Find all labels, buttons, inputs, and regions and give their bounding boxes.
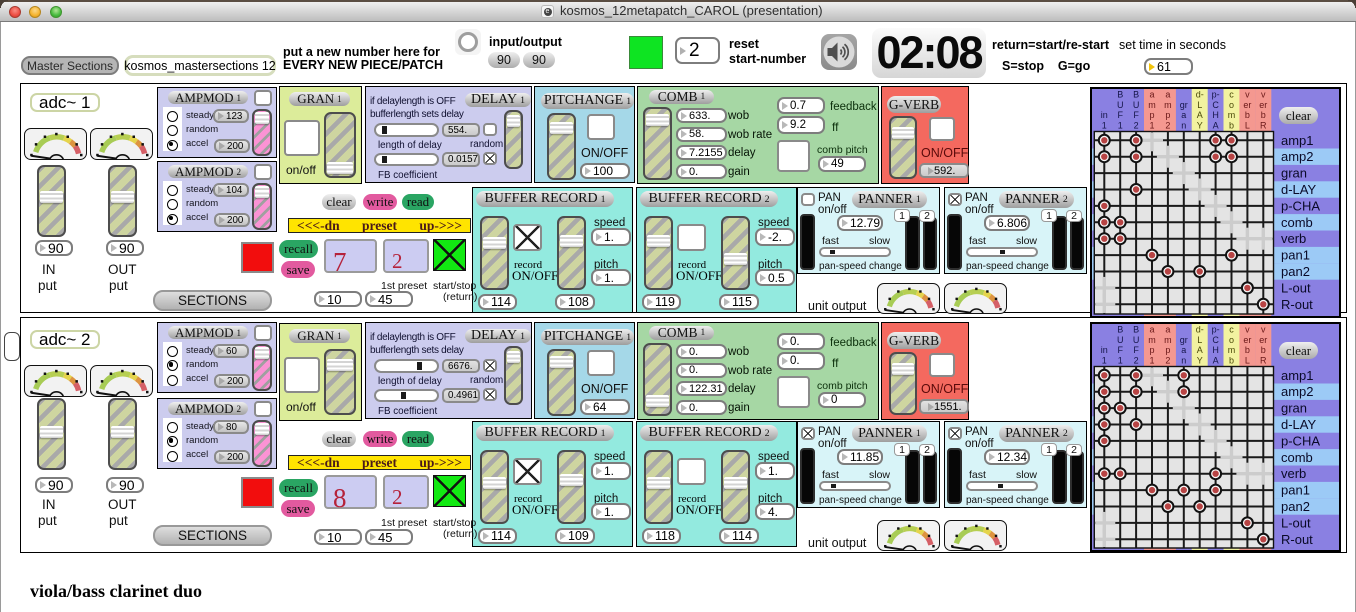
svg-text:d-LAY: d-LAY bbox=[1281, 417, 1316, 432]
svg-text:m: m bbox=[1164, 335, 1172, 345]
svg-text:A: A bbox=[1197, 110, 1203, 120]
svg-text:1: 1 bbox=[1102, 356, 1107, 366]
svg-text:b: b bbox=[1245, 110, 1250, 120]
svg-text:2: 2 bbox=[1134, 121, 1139, 131]
svg-text:U: U bbox=[1133, 335, 1140, 345]
svg-text:b: b bbox=[1229, 121, 1234, 131]
svg-text:b: b bbox=[1229, 356, 1234, 366]
svg-text:a: a bbox=[1149, 90, 1154, 100]
svg-text:C: C bbox=[1212, 335, 1219, 345]
svg-text:1: 1 bbox=[1102, 121, 1107, 131]
svg-text:o: o bbox=[1229, 100, 1234, 110]
svg-text:b: b bbox=[1245, 345, 1250, 355]
svg-text:pan1: pan1 bbox=[1281, 248, 1310, 263]
svg-text:c: c bbox=[1229, 325, 1234, 335]
svg-text:d-: d- bbox=[1196, 90, 1204, 100]
svg-text:in: in bbox=[1101, 110, 1108, 120]
svg-text:2: 2 bbox=[1134, 356, 1139, 366]
svg-text:gr: gr bbox=[1180, 335, 1188, 345]
svg-text:er: er bbox=[1259, 100, 1267, 110]
svg-text:L: L bbox=[1245, 356, 1250, 366]
svg-text:a: a bbox=[1181, 110, 1186, 120]
svg-text:F: F bbox=[1133, 345, 1139, 355]
svg-text:verb: verb bbox=[1281, 466, 1306, 481]
svg-text:Y: Y bbox=[1197, 121, 1203, 131]
svg-text:p-: p- bbox=[1212, 325, 1220, 335]
svg-text:p-CHA: p-CHA bbox=[1281, 433, 1320, 448]
svg-text:p: p bbox=[1165, 345, 1170, 355]
svg-text:a: a bbox=[1165, 325, 1170, 335]
svg-text:d-: d- bbox=[1196, 325, 1204, 335]
svg-text:U: U bbox=[1117, 335, 1124, 345]
svg-text:F: F bbox=[1117, 345, 1123, 355]
svg-text:pan1: pan1 bbox=[1281, 483, 1310, 498]
svg-text:m: m bbox=[1164, 100, 1172, 110]
svg-text:c: c bbox=[1229, 90, 1234, 100]
svg-text:B: B bbox=[1133, 90, 1139, 100]
svg-text:er: er bbox=[1259, 335, 1267, 345]
svg-text:1: 1 bbox=[1118, 356, 1123, 366]
svg-text:amp1: amp1 bbox=[1281, 133, 1314, 148]
svg-text:A: A bbox=[1197, 345, 1203, 355]
svg-text:m: m bbox=[1228, 345, 1236, 355]
svg-text:R-out: R-out bbox=[1281, 532, 1313, 547]
svg-text:H: H bbox=[1212, 110, 1219, 120]
svg-text:U: U bbox=[1133, 100, 1140, 110]
svg-text:B: B bbox=[1117, 325, 1123, 335]
svg-text:L: L bbox=[1197, 335, 1202, 345]
svg-text:comb: comb bbox=[1281, 215, 1313, 230]
svg-text:2: 2 bbox=[1165, 121, 1170, 131]
svg-text:n: n bbox=[1181, 121, 1186, 131]
svg-text:H: H bbox=[1212, 345, 1219, 355]
svg-text:C: C bbox=[1212, 100, 1219, 110]
svg-text:in: in bbox=[1101, 345, 1108, 355]
svg-text:m: m bbox=[1228, 110, 1236, 120]
svg-text:er: er bbox=[1243, 335, 1251, 345]
svg-text:B: B bbox=[1133, 325, 1139, 335]
svg-text:m: m bbox=[1148, 335, 1156, 345]
svg-text:d-LAY: d-LAY bbox=[1281, 182, 1316, 197]
svg-text:L-out: L-out bbox=[1281, 515, 1311, 530]
svg-text:b: b bbox=[1261, 110, 1266, 120]
svg-text:a: a bbox=[1181, 345, 1186, 355]
svg-text:n: n bbox=[1181, 356, 1186, 366]
svg-text:amp1: amp1 bbox=[1281, 368, 1314, 383]
svg-text:p-: p- bbox=[1212, 90, 1220, 100]
svg-text:1: 1 bbox=[1118, 121, 1123, 131]
svg-text:p: p bbox=[1165, 110, 1170, 120]
svg-text:pan2: pan2 bbox=[1281, 499, 1310, 514]
svg-text:Y: Y bbox=[1197, 356, 1203, 366]
svg-text:U: U bbox=[1117, 100, 1124, 110]
svg-text:er: er bbox=[1243, 100, 1251, 110]
svg-text:L: L bbox=[1197, 100, 1202, 110]
svg-text:v: v bbox=[1245, 325, 1250, 335]
svg-text:R: R bbox=[1260, 121, 1267, 131]
svg-text:gran: gran bbox=[1281, 401, 1307, 416]
svg-text:1: 1 bbox=[1149, 121, 1154, 131]
svg-text:comb: comb bbox=[1281, 450, 1313, 465]
svg-text:verb: verb bbox=[1281, 231, 1306, 246]
svg-text:2: 2 bbox=[1165, 356, 1170, 366]
svg-text:a: a bbox=[1165, 90, 1170, 100]
svg-text:a: a bbox=[1149, 325, 1154, 335]
svg-text:m: m bbox=[1148, 100, 1156, 110]
svg-text:v: v bbox=[1261, 325, 1266, 335]
svg-text:L-out: L-out bbox=[1281, 280, 1311, 295]
svg-text:amp2: amp2 bbox=[1281, 149, 1314, 164]
svg-text:B: B bbox=[1117, 90, 1123, 100]
svg-text:gran: gran bbox=[1281, 166, 1307, 181]
svg-text:F: F bbox=[1133, 110, 1139, 120]
svg-text:1: 1 bbox=[1149, 356, 1154, 366]
svg-text:p: p bbox=[1149, 345, 1154, 355]
svg-text:b: b bbox=[1261, 345, 1266, 355]
svg-text:A: A bbox=[1213, 121, 1219, 131]
svg-text:o: o bbox=[1229, 335, 1234, 345]
svg-text:R-out: R-out bbox=[1281, 297, 1313, 312]
svg-text:A: A bbox=[1213, 356, 1219, 366]
svg-text:gr: gr bbox=[1180, 100, 1188, 110]
svg-text:amp2: amp2 bbox=[1281, 384, 1314, 399]
svg-text:F: F bbox=[1117, 110, 1123, 120]
svg-text:R: R bbox=[1260, 356, 1267, 366]
svg-text:v: v bbox=[1261, 90, 1266, 100]
svg-text:L: L bbox=[1245, 121, 1250, 131]
svg-text:v: v bbox=[1245, 90, 1250, 100]
svg-text:p-CHA: p-CHA bbox=[1281, 198, 1320, 213]
svg-text:p: p bbox=[1149, 110, 1154, 120]
svg-text:pan2: pan2 bbox=[1281, 264, 1310, 279]
